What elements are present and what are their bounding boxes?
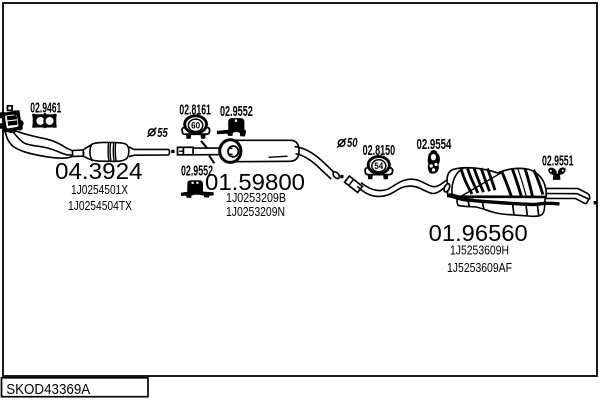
svg-text:1J0254504TX: 1J0254504TX [68, 198, 132, 213]
svg-text:1J0253209B: 1J0253209B [226, 190, 286, 205]
svg-text:55: 55 [157, 125, 168, 140]
svg-text:1J5253609H: 1J5253609H [450, 243, 509, 258]
svg-text:50: 50 [347, 135, 358, 150]
svg-text:04.3924: 04.3924 [55, 158, 143, 184]
svg-text:02.9552: 02.9552 [220, 104, 253, 120]
svg-text:1J0253209N: 1J0253209N [226, 204, 285, 219]
svg-text:1J5253609AF: 1J5253609AF [447, 260, 512, 275]
svg-text:1J0254501X: 1J0254501X [71, 182, 128, 197]
svg-text:02.9551: 02.9551 [542, 154, 574, 170]
svg-text:SKOD43369A: SKOD43369A [6, 382, 90, 398]
svg-text:60: 60 [191, 120, 200, 130]
svg-text:54: 54 [374, 161, 383, 171]
